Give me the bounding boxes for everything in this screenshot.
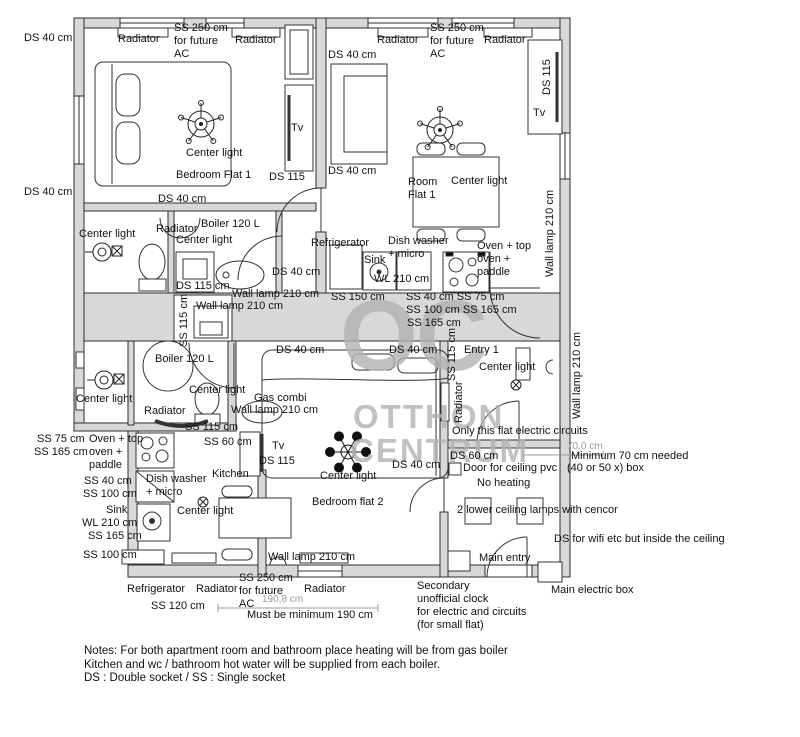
plan-label: Center light — [76, 393, 132, 406]
plan-label: SS 115 cm — [185, 421, 238, 434]
plan-label: Radiator — [118, 33, 160, 46]
floor-plan-page: OC OTTHON CENTRUM DS 40 cmDS 40 cmRadiat… — [0, 0, 800, 737]
plan-label: Main entry — [479, 552, 530, 565]
plan-label: Tv — [272, 440, 284, 453]
plan-label: DS 115 cm — [176, 280, 230, 293]
plan-label: Wall lamp 210 cm — [231, 404, 318, 417]
plan-label: Radiator — [304, 583, 346, 596]
plan-label: Kitchen — [212, 468, 249, 481]
plan-label: Oven + top oven + paddle — [89, 433, 143, 472]
plan-label: Center light — [320, 470, 376, 483]
plan-label: No heating — [477, 477, 530, 490]
plan-label: Bedroom Flat 1 — [176, 169, 251, 182]
plan-label: 190,8 cm — [262, 594, 303, 606]
plan-label: Radiator — [453, 381, 466, 423]
plan-label: Wall lamp 210 cm — [268, 551, 355, 564]
plan-label: Center light — [186, 147, 242, 160]
plan-label: Boiler 120 L — [201, 218, 260, 231]
plan-label: Center light — [479, 361, 535, 374]
plan-label: Oven + top oven + paddle — [477, 240, 531, 279]
plan-label: Center light — [176, 234, 232, 247]
plan-label: SS 60 cm — [204, 436, 252, 449]
plan-label: Radiator — [484, 34, 526, 47]
plan-label: Tv — [291, 122, 303, 135]
plan-label: SS 40 cm SS 75 cm — [406, 291, 504, 304]
plan-label: Center light — [189, 384, 245, 397]
plan-label: 2 lower ceiling lamps with cencor — [457, 504, 618, 517]
plan-label: Wall lamp 210 cm — [544, 190, 557, 277]
plan-label: SS 115 cm — [178, 294, 191, 347]
plan-label: Sink — [106, 504, 127, 517]
plan-label: Refrigerator — [311, 237, 369, 250]
notes-text: Notes: For both apartment room and bathr… — [84, 645, 508, 686]
plan-label: DS for wifi etc but inside the ceiling — [554, 533, 725, 546]
plan-label: Boiler 120 L — [155, 353, 214, 366]
plan-label: WL 210 cm — [82, 517, 137, 530]
plan-label: DS 40 cm — [328, 49, 376, 62]
plan-label: SS 150 cm — [331, 291, 385, 304]
plan-label: WL 210 cm — [374, 273, 429, 286]
plan-label: Dish washer + micro — [146, 473, 207, 499]
plan-label: Radiator — [144, 405, 186, 418]
plan-label: SS 75 cm — [37, 433, 85, 446]
plan-label: DS 115 — [269, 171, 305, 184]
plan-label: SS 100 cm SS 165 cm — [406, 304, 517, 317]
plan-label: Tv — [533, 107, 545, 120]
plan-label: Wall lamp 210 cm — [571, 332, 584, 419]
plan-label: DS 40 cm — [24, 186, 72, 199]
plan-label: Bedroom flat 2 — [312, 496, 384, 509]
plan-label: DS 40 cm — [328, 165, 376, 178]
plan-label: Refrigerator — [127, 583, 185, 596]
plan-label: Radiator — [196, 583, 238, 596]
plan-label: SS 250 cm for future AC — [430, 22, 484, 61]
plan-label: SS 165 cm — [88, 530, 142, 543]
plan-label: SS 100 cm — [83, 549, 137, 562]
plan-label: DS 40 cm — [272, 266, 320, 279]
plan-label: DS 115 — [541, 59, 554, 95]
plan-label: DS 40 cm — [389, 344, 437, 357]
plan-label: Entry 1 — [464, 344, 499, 357]
plan-label: SS 100 cm — [83, 488, 137, 501]
plan-label: Center light — [79, 228, 135, 241]
plan-label: DS 40 cm — [158, 193, 206, 206]
plan-label: Center light — [177, 505, 233, 518]
plan-label: SS 120 cm — [151, 600, 205, 613]
plan-label: SS 165 cm — [34, 446, 88, 459]
plan-label: (40 or 50 x) box — [567, 462, 644, 475]
plan-label: SS 115 cm — [446, 328, 459, 381]
plan-label: DS 115 — [259, 455, 295, 468]
plan-label: DS 40 cm — [276, 344, 324, 357]
plan-label: DS 40 cm — [392, 459, 440, 472]
plan-label: Dish washer + micro — [388, 235, 449, 261]
plan-label: Main electric box — [551, 584, 634, 597]
plan-label: Radiator — [377, 34, 419, 47]
plan-label: Secondary unofficial clock for electric … — [417, 580, 526, 632]
plan-label: Door for ceiling pvc — [463, 462, 557, 475]
plan-label: Wall lamp 210 cm — [196, 300, 283, 313]
plan-label: DS 40 cm — [24, 32, 72, 45]
plan-label: Only this flat electric circuits — [452, 425, 588, 438]
plan-label: Radiator — [235, 34, 277, 47]
plan-label: Sink — [364, 254, 385, 267]
plan-label: SS 40 cm — [84, 475, 132, 488]
plan-label: Room Flat 1 — [408, 176, 437, 202]
plan-label: Center light — [451, 175, 507, 188]
plan-label: SS 250 cm for future AC — [174, 22, 228, 61]
plan-label: Must be minimum 190 cm — [247, 609, 373, 622]
